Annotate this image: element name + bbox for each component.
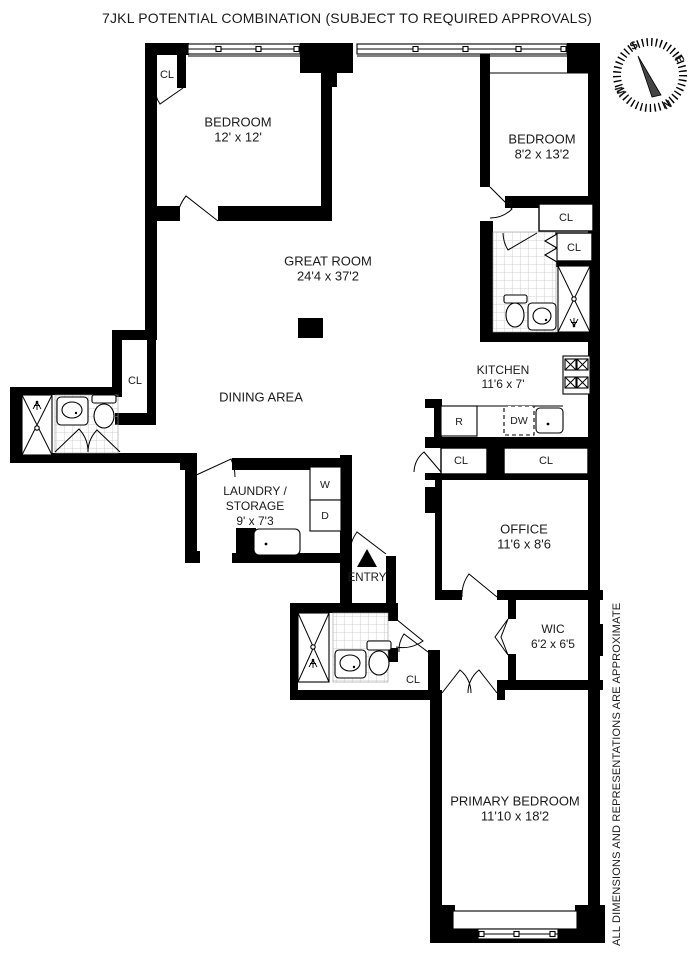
rect-shape [487,448,504,474]
rect-shape [185,551,200,563]
page-title: 7JKL POTENTIAL COMBINATION (SUBJECT TO R… [102,10,592,26]
rect-shape [321,72,337,87]
rect-shape [145,206,180,221]
rect-shape [588,43,600,943]
disclaimer-text: ALL DIMENSIONS AND REPRESENTATIONS ARE A… [611,603,623,946]
rect-shape [236,528,256,555]
entry-arrow-icon [357,549,377,567]
rect-shape [413,47,418,52]
window-top-right [357,44,567,54]
floorplan-page: 7JKL POTENTIAL COMBINATION (SUBJECT TO R… [0,0,694,956]
primary-bedroom-dims: 11'10 x 18'2 [481,809,549,824]
kitchen-dims: 11'6 x 7' [481,377,524,391]
wic-label: WIC [541,622,565,636]
office-dims: 11'6 x 8'6 [497,537,551,552]
rect-shape [115,413,156,425]
ellipse-shape [94,404,114,428]
office-label: OFFICE [500,522,548,537]
dishwasher-label: DW [510,415,528,427]
stove-icon [563,356,590,394]
rect-shape [10,387,118,395]
ellipse-shape [506,303,524,327]
floorplan-svg: 7JKL POTENTIAL COMBINATION (SUBJECT TO R… [0,0,694,956]
rect-shape [321,85,332,221]
rect-shape [340,455,352,613]
bathroom-left [22,395,118,455]
primary-bedroom-label: PRIMARY BEDROOM [450,794,580,809]
rect-shape [497,680,603,690]
kitchen-sink-icon [536,408,563,433]
rect-shape [480,221,493,342]
rect-shape [367,641,391,650]
path-shape [350,532,386,554]
door-primary-right [468,670,497,693]
rect-shape [92,395,116,403]
path-shape [442,670,471,693]
refrigerator-label: R [455,416,463,428]
laundry-dims: 9' x 7'3 [236,514,274,528]
rect-shape [290,603,398,613]
rect-shape [300,43,353,73]
rect-shape [290,603,298,700]
toilet-icon [367,641,391,675]
circle-shape [265,543,268,546]
rect-shape [425,437,600,448]
laundry-sink-icon [254,529,300,555]
rect-shape [479,932,484,937]
kitchen-label: KITCHEN [477,363,530,377]
washer-label: W [320,479,330,491]
closet-label: CL [454,455,468,467]
rect-shape [185,455,197,563]
rect-shape [561,47,566,52]
rect-shape [435,590,462,600]
rect-shape [254,529,300,555]
closet-label: CL [406,674,420,686]
bedroom1-dims: 12' x 12' [214,130,262,145]
door-laundry [192,459,235,477]
path-shape [192,459,235,477]
great-room-label: GREAT ROOM [284,254,372,269]
rect-shape [550,932,555,937]
rect-shape [147,330,156,425]
rect-shape [463,47,468,52]
wic-dims: 6'2 x 6'5 [531,637,575,651]
bathroom-middle [298,613,391,682]
rect-shape [480,332,600,342]
circle-shape [75,412,77,414]
ellipse-shape [369,651,389,675]
toilet-icon [92,395,116,428]
door-hall-closet [399,634,428,652]
door-primary-left [442,670,471,693]
closet-label: CL [128,375,142,387]
rect-shape [592,624,603,656]
window-primary-bedroom [478,929,558,939]
laundry-label-2: STORAGE [226,499,284,513]
column [298,318,323,338]
circle-shape [547,423,550,426]
closet-label: CL [567,242,581,254]
compass-ticks [617,42,683,108]
closet-label: CL [160,69,174,81]
shower-icon [298,613,329,682]
circle-shape [35,426,39,430]
ellipse-shape [533,308,551,324]
door-entry [350,532,386,554]
bedroom2-dims: 8'2 x 13'2 [515,147,570,162]
great-room-dims: 24'4 x 37'2 [297,269,359,284]
rect-shape [430,700,442,912]
path-shape [399,634,428,652]
rect-shape [536,408,563,433]
circle-shape [572,297,576,301]
window-top-left [188,44,300,54]
rect-shape [508,598,516,619]
sink-icon [528,303,556,330]
rect-shape [497,688,505,700]
ellipse-shape [340,655,360,671]
compass-rose: S E N W [613,39,686,111]
entry-label: ENTRY [348,572,387,584]
circle-shape [545,319,547,321]
door-office [462,574,497,597]
path-shape [462,574,497,597]
ellipse-shape [62,402,82,418]
rect-shape [218,206,322,221]
rect-shape [425,690,442,700]
door-bedroom1-closet [155,88,183,104]
rect-shape [504,295,527,303]
rect-shape [508,654,516,682]
rect-shape [480,70,490,187]
sink-icon [57,397,88,425]
dining-area-label: DINING AREA [219,390,303,405]
window-bay [453,911,577,929]
path-shape [177,196,218,221]
shower-icon [558,266,590,332]
door-wic-bifold [495,619,508,655]
path-shape [414,452,441,472]
rect-shape [294,47,299,52]
laundry-label-1: LAUNDRY / [223,484,287,498]
closet-label: CL [559,212,573,224]
rect-shape [290,690,440,700]
path-shape [468,670,497,693]
closet-label: CL [539,455,553,467]
sink-icon [335,650,366,678]
bedroom1-label: BEDROOM [204,115,271,130]
rect-shape [177,52,186,88]
rect-shape [425,487,442,513]
circle-shape [311,645,315,649]
rect-shape [256,47,261,52]
rect-shape [514,932,519,937]
door-closet-kitchen [414,452,441,472]
circle-shape [353,666,355,668]
rect-shape [516,47,521,52]
dryer-label: D [321,510,329,522]
path-shape [495,619,508,655]
rect-shape [145,43,157,332]
path-shape [155,88,183,104]
door-bedroom1 [177,196,218,221]
rect-shape [216,47,221,52]
shower-icon [22,395,52,455]
bedroom2-label: BEDROOM [508,132,575,147]
rect-shape [10,387,22,463]
compass-needle-icon [638,56,661,97]
